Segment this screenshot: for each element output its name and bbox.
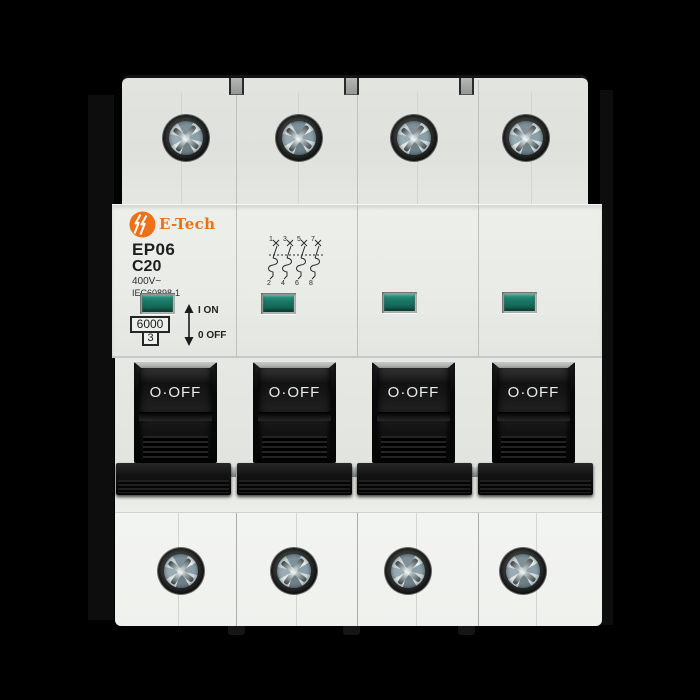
contact-status-window (140, 293, 175, 314)
wiring-diagram: 1 3 5 7 (266, 233, 328, 291)
case-clip-tab (343, 626, 360, 635)
circuit-breaker-photo: E-Tech EP06 C20 400V~ IEC60898-1 6000 3 … (0, 0, 700, 700)
diagram-terminal-number: 6 (295, 280, 299, 287)
voltage-rating: 400V~ (132, 277, 161, 287)
terminal-screw-icon (158, 548, 204, 594)
terminal-screw-icon (500, 548, 546, 594)
terminal-screw-icon (271, 548, 317, 594)
case-left-shadow (88, 95, 114, 620)
pole-seam (357, 205, 358, 357)
screw-head-icon (509, 121, 543, 155)
on-marking: I ON (198, 306, 219, 316)
pole-seam (357, 513, 358, 626)
brand-logo-icon (129, 211, 156, 238)
energy-class-box: 3 (142, 331, 159, 346)
pole-seam (478, 80, 479, 204)
status-window-glass (142, 295, 173, 312)
current-rating: C20 (132, 259, 161, 275)
case-clip-tab (458, 626, 475, 635)
on-off-direction-arrow-icon (182, 303, 196, 347)
screw-head-icon (282, 121, 316, 155)
terminal-screw-icon (391, 115, 437, 161)
diagram-terminal-number: 4 (281, 280, 285, 287)
case-clip-tab (229, 78, 244, 95)
off-marking: 0 OFF (198, 331, 226, 341)
diagram-terminal-number: 8 (309, 280, 313, 287)
case-clip-tab (228, 626, 245, 635)
pole-seam (236, 205, 237, 357)
diagram-symbols (266, 238, 328, 284)
model-number: EP06 (132, 241, 175, 258)
screw-head-icon (277, 554, 311, 588)
pole-seam (478, 205, 479, 357)
brand-name: E-Tech (159, 215, 215, 233)
toggle-handle: O·OFF (139, 368, 212, 463)
toggle-handle: O·OFF (258, 368, 331, 463)
terminal-screw-icon (503, 115, 549, 161)
terminal-screw-icon (276, 115, 322, 161)
case-clip-tab (459, 78, 474, 95)
screw-head-icon (164, 554, 198, 588)
handle-tie-bar (237, 463, 352, 495)
handle-tie-bar (357, 463, 472, 495)
case-clip-tab (344, 78, 359, 95)
contact-status-window (261, 293, 296, 314)
contact-status-window (502, 292, 537, 313)
diagram-terminal-number: 2 (267, 280, 271, 287)
status-window-glass (263, 295, 294, 312)
toggle-handle: O·OFF (377, 368, 450, 463)
pole-seam (357, 80, 358, 204)
terminal-screw-icon (385, 548, 431, 594)
screw-head-icon (169, 121, 203, 155)
terminal-screw-icon (163, 115, 209, 161)
contact-status-window (382, 292, 417, 313)
screw-head-icon (391, 554, 425, 588)
handle-tie-bar (116, 463, 231, 495)
status-window-glass (504, 294, 535, 311)
screw-head-icon (506, 554, 540, 588)
pole-seam (478, 513, 479, 626)
toggle-handle: O·OFF (497, 368, 570, 463)
pole-seam (236, 513, 237, 626)
status-window-glass (384, 294, 415, 311)
screw-head-icon (397, 121, 431, 155)
pole-seam (236, 80, 237, 204)
handle-tie-bar (478, 463, 593, 495)
